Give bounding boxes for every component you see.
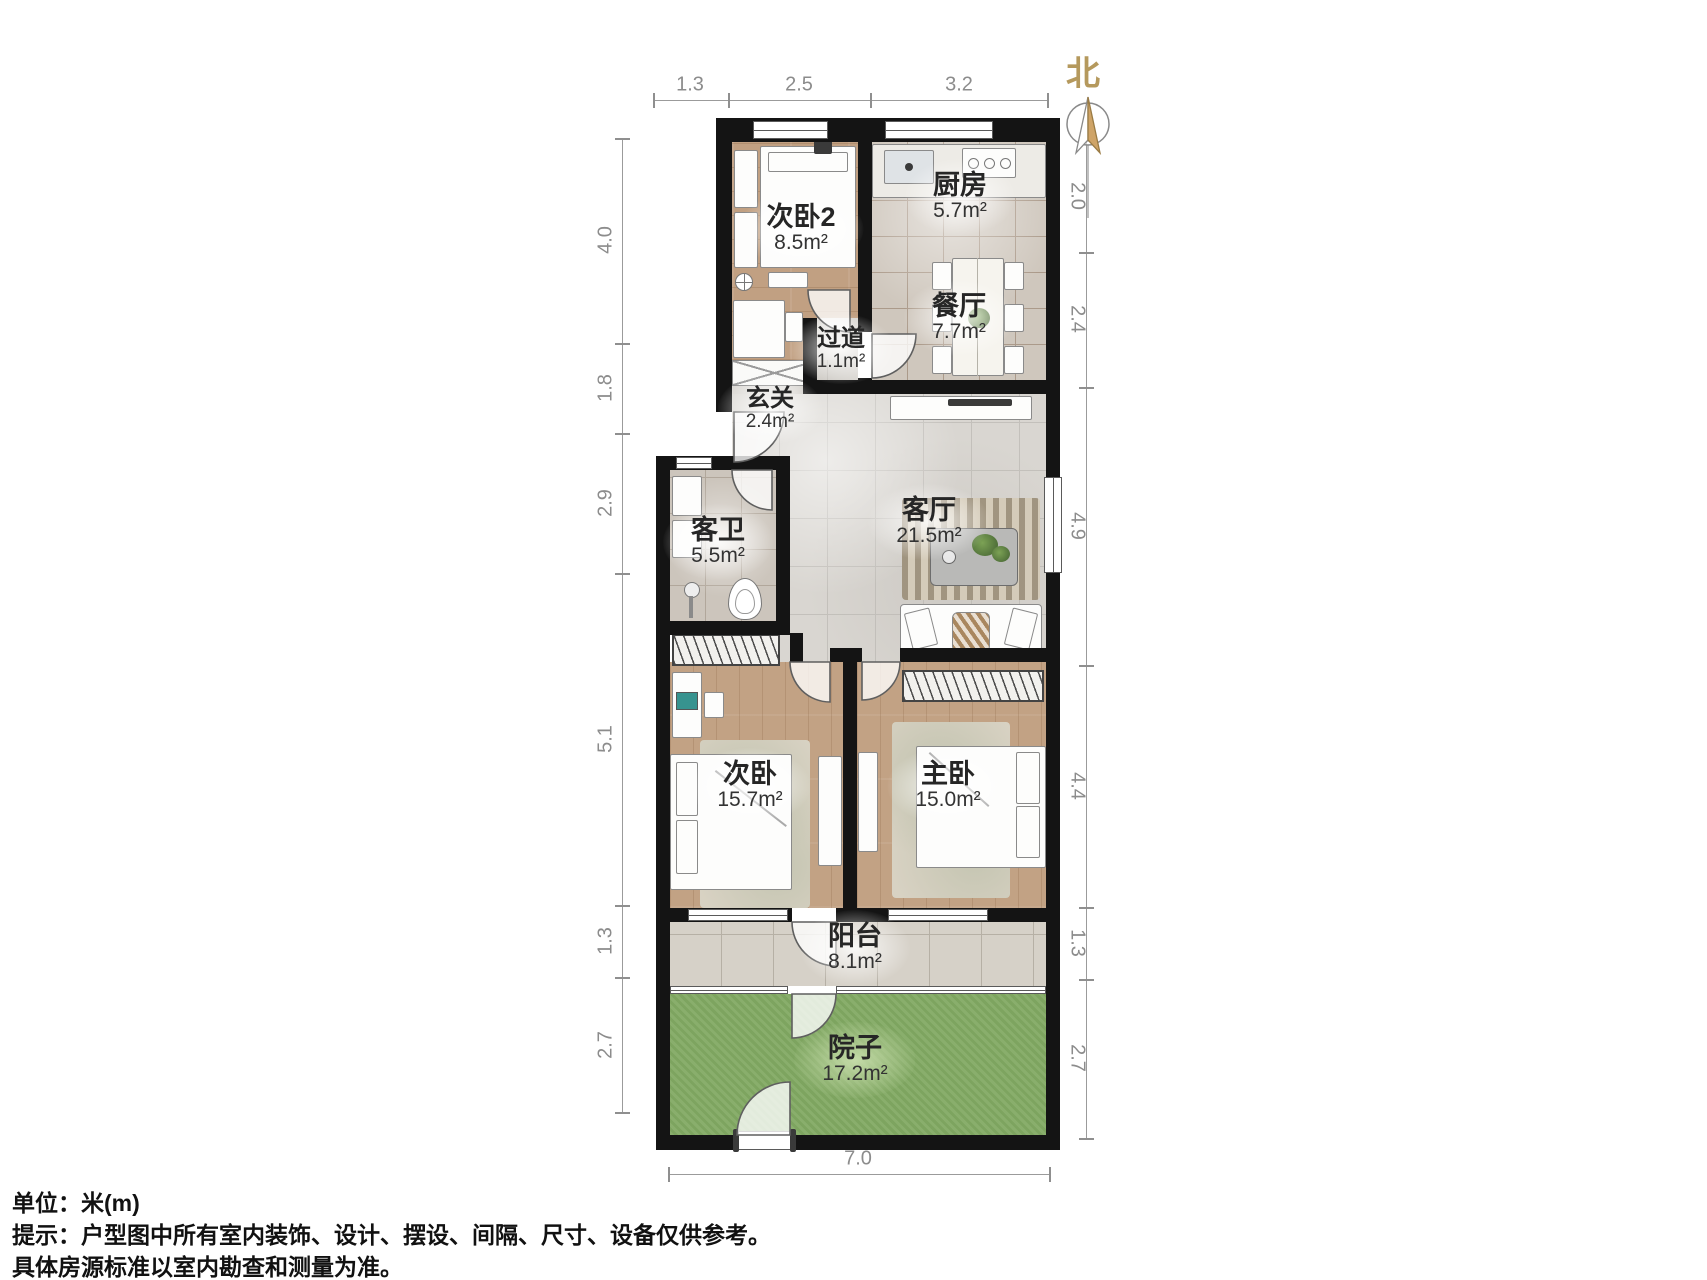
dim-label-left-5: 2.7 — [595, 1031, 618, 1059]
ceiling-fan-icon — [735, 273, 753, 291]
tv — [948, 399, 1012, 406]
dim-label-right-4: 1.3 — [1066, 929, 1089, 957]
dimension-line-bottom — [668, 1174, 1050, 1175]
room-name: 次卧 — [723, 760, 777, 789]
dim-tick — [1079, 979, 1094, 981]
room-area: 1.1m² — [817, 352, 866, 373]
wall-bottom — [656, 1135, 737, 1150]
faucet-icon — [905, 163, 913, 171]
wall-lower-left — [656, 456, 670, 1150]
window-bedroom2 — [753, 121, 828, 139]
footer-tip-line2: 具体房源标准以室内勘查和测量为准。 — [12, 1248, 403, 1280]
wardrobe-hatched — [672, 634, 780, 666]
sofa-blanket — [952, 612, 990, 652]
room-area: 8.5m² — [774, 232, 828, 255]
wardrobe-hatched — [902, 670, 1044, 702]
dim-label-right-3: 4.4 — [1066, 772, 1089, 800]
dim-tick — [653, 93, 655, 108]
footer-unit-note: 单位：米(m) — [12, 1184, 140, 1218]
monitor — [676, 692, 698, 710]
dim-tick — [615, 433, 630, 435]
window-living-bay — [1044, 477, 1062, 573]
dimension-line-left — [622, 138, 623, 1112]
room-name: 餐厅 — [932, 292, 986, 321]
room-label-balcony: 阳台 8.1m² — [828, 922, 882, 974]
window-bedroom-balcony — [688, 909, 788, 921]
dim-tick — [1079, 252, 1094, 254]
room-label-master: 主卧 15.0m² — [915, 760, 980, 812]
room-label-bathroom: 客卫 5.5m² — [691, 516, 745, 568]
wardrobe-panel — [734, 150, 758, 208]
dim-label-left-0: 4.0 — [595, 226, 618, 254]
burner-icon — [1000, 158, 1011, 169]
room-area: 8.1m² — [828, 951, 882, 974]
dim-label-left-3: 5.1 — [595, 725, 618, 753]
room-label-bedroom: 次卧 15.7m² — [717, 760, 782, 812]
room-area: 7.7m² — [932, 321, 986, 344]
room-label-living: 客厅 21.5m² — [896, 496, 961, 548]
chair — [704, 692, 724, 718]
gate-post — [790, 1129, 796, 1152]
dim-tick — [615, 905, 630, 907]
dim-tick — [1049, 1167, 1051, 1182]
room-name: 客卫 — [691, 516, 745, 545]
dim-label-bottom-0: 7.0 — [844, 1148, 872, 1171]
dim-label-right-0: 2.0 — [1066, 182, 1089, 210]
room-name: 厨房 — [933, 171, 987, 200]
dim-label-top-1: 2.5 — [785, 74, 813, 97]
room-name: 次卧2 — [766, 203, 835, 232]
dim-tick — [1079, 665, 1094, 667]
room-area: 2.4m² — [746, 412, 795, 433]
dim-tick — [615, 138, 630, 140]
wall-bedroom-top — [830, 648, 862, 662]
room-name: 过道 — [817, 326, 865, 352]
wall-bath-bottom — [656, 621, 790, 635]
dim-label-left-1: 1.8 — [595, 374, 618, 402]
dresser — [858, 752, 878, 852]
dim-label-right-1: 2.4 — [1066, 305, 1089, 333]
wall-right — [1046, 118, 1060, 1150]
dim-tick — [1079, 140, 1094, 142]
dim-label-top-2: 3.2 — [945, 74, 973, 97]
dining-chair — [1004, 346, 1024, 374]
nightstand — [768, 272, 808, 288]
dim-label-right-5: 2.7 — [1066, 1044, 1089, 1072]
gate-post — [733, 1129, 739, 1152]
dim-tick — [1079, 387, 1094, 389]
pillow — [1016, 752, 1040, 804]
wall-appliance — [814, 140, 832, 154]
desk-bedroom2 — [733, 300, 785, 358]
dim-label-top-0: 1.3 — [676, 74, 704, 97]
shower-stem — [689, 596, 693, 618]
floorplan-page: 次卧2 8.5m² 厨房 5.7m² 餐厅 7.7m² 过道 1.1m² 玄关 … — [0, 0, 1707, 1280]
room-label-entry: 玄关 2.4m² — [746, 386, 795, 432]
room-label-bedroom2: 次卧2 8.5m² — [766, 203, 835, 255]
room-area: 15.0m² — [915, 789, 980, 812]
wall-upper-left — [716, 118, 732, 412]
room-name: 主卧 — [921, 760, 975, 789]
balcony-railing — [670, 986, 788, 994]
room-area: 5.5m² — [691, 545, 745, 568]
dimension-line-top — [653, 100, 1048, 101]
dim-label-left-4: 1.3 — [595, 927, 618, 955]
window-kitchen — [885, 121, 993, 139]
room-name: 玄关 — [746, 386, 794, 412]
room-label-corridor: 过道 1.1m² — [817, 326, 866, 372]
dim-tick — [1047, 93, 1049, 108]
balcony-railing — [836, 986, 1046, 994]
dim-tick — [870, 93, 872, 108]
dim-label-right-2: 4.9 — [1066, 512, 1089, 540]
dim-tick — [668, 1167, 670, 1182]
dresser — [818, 756, 842, 866]
dim-tick — [615, 343, 630, 345]
room-name: 院子 — [828, 1034, 882, 1063]
dim-tick — [615, 1112, 630, 1114]
room-label-dining: 餐厅 7.7m² — [932, 292, 986, 344]
room-area: 17.2m² — [822, 1063, 887, 1086]
room-name: 阳台 — [828, 922, 882, 951]
north-label: 北 — [1066, 46, 1100, 95]
dim-tick — [1079, 907, 1094, 909]
dim-tick — [615, 977, 630, 979]
dimension-line-right — [1086, 140, 1087, 1138]
room-name: 客厅 — [902, 496, 956, 525]
wall-bedroom-top — [900, 648, 1046, 662]
room-area: 15.7m² — [717, 789, 782, 812]
dining-chair — [1004, 262, 1024, 290]
dim-tick — [728, 93, 730, 108]
wall-corner — [790, 633, 803, 662]
yard-gate — [737, 1131, 792, 1150]
room-area: 5.7m² — [933, 200, 987, 223]
pillow — [676, 820, 698, 874]
wall-bath-right — [776, 470, 790, 633]
dim-label-left-2: 2.9 — [595, 489, 618, 517]
window-master-balcony — [888, 909, 988, 921]
pillow — [768, 152, 848, 172]
pillow — [1016, 806, 1040, 858]
window-bathroom — [676, 457, 712, 469]
room-label-yard: 院子 17.2m² — [822, 1034, 887, 1086]
footer-tip-line1: 提示：户型图中所有室内装饰、设计、摆设、间隔、尺寸、设备仅供参考。 — [12, 1216, 771, 1250]
dim-tick — [1079, 1138, 1094, 1140]
plant-icon — [992, 546, 1010, 562]
room-label-kitchen: 厨房 5.7m² — [933, 171, 987, 223]
room-area: 21.5m² — [896, 525, 961, 548]
wall-bedroom-divider — [843, 662, 857, 922]
dim-tick — [615, 573, 630, 575]
wall-bottom — [792, 1135, 1060, 1150]
